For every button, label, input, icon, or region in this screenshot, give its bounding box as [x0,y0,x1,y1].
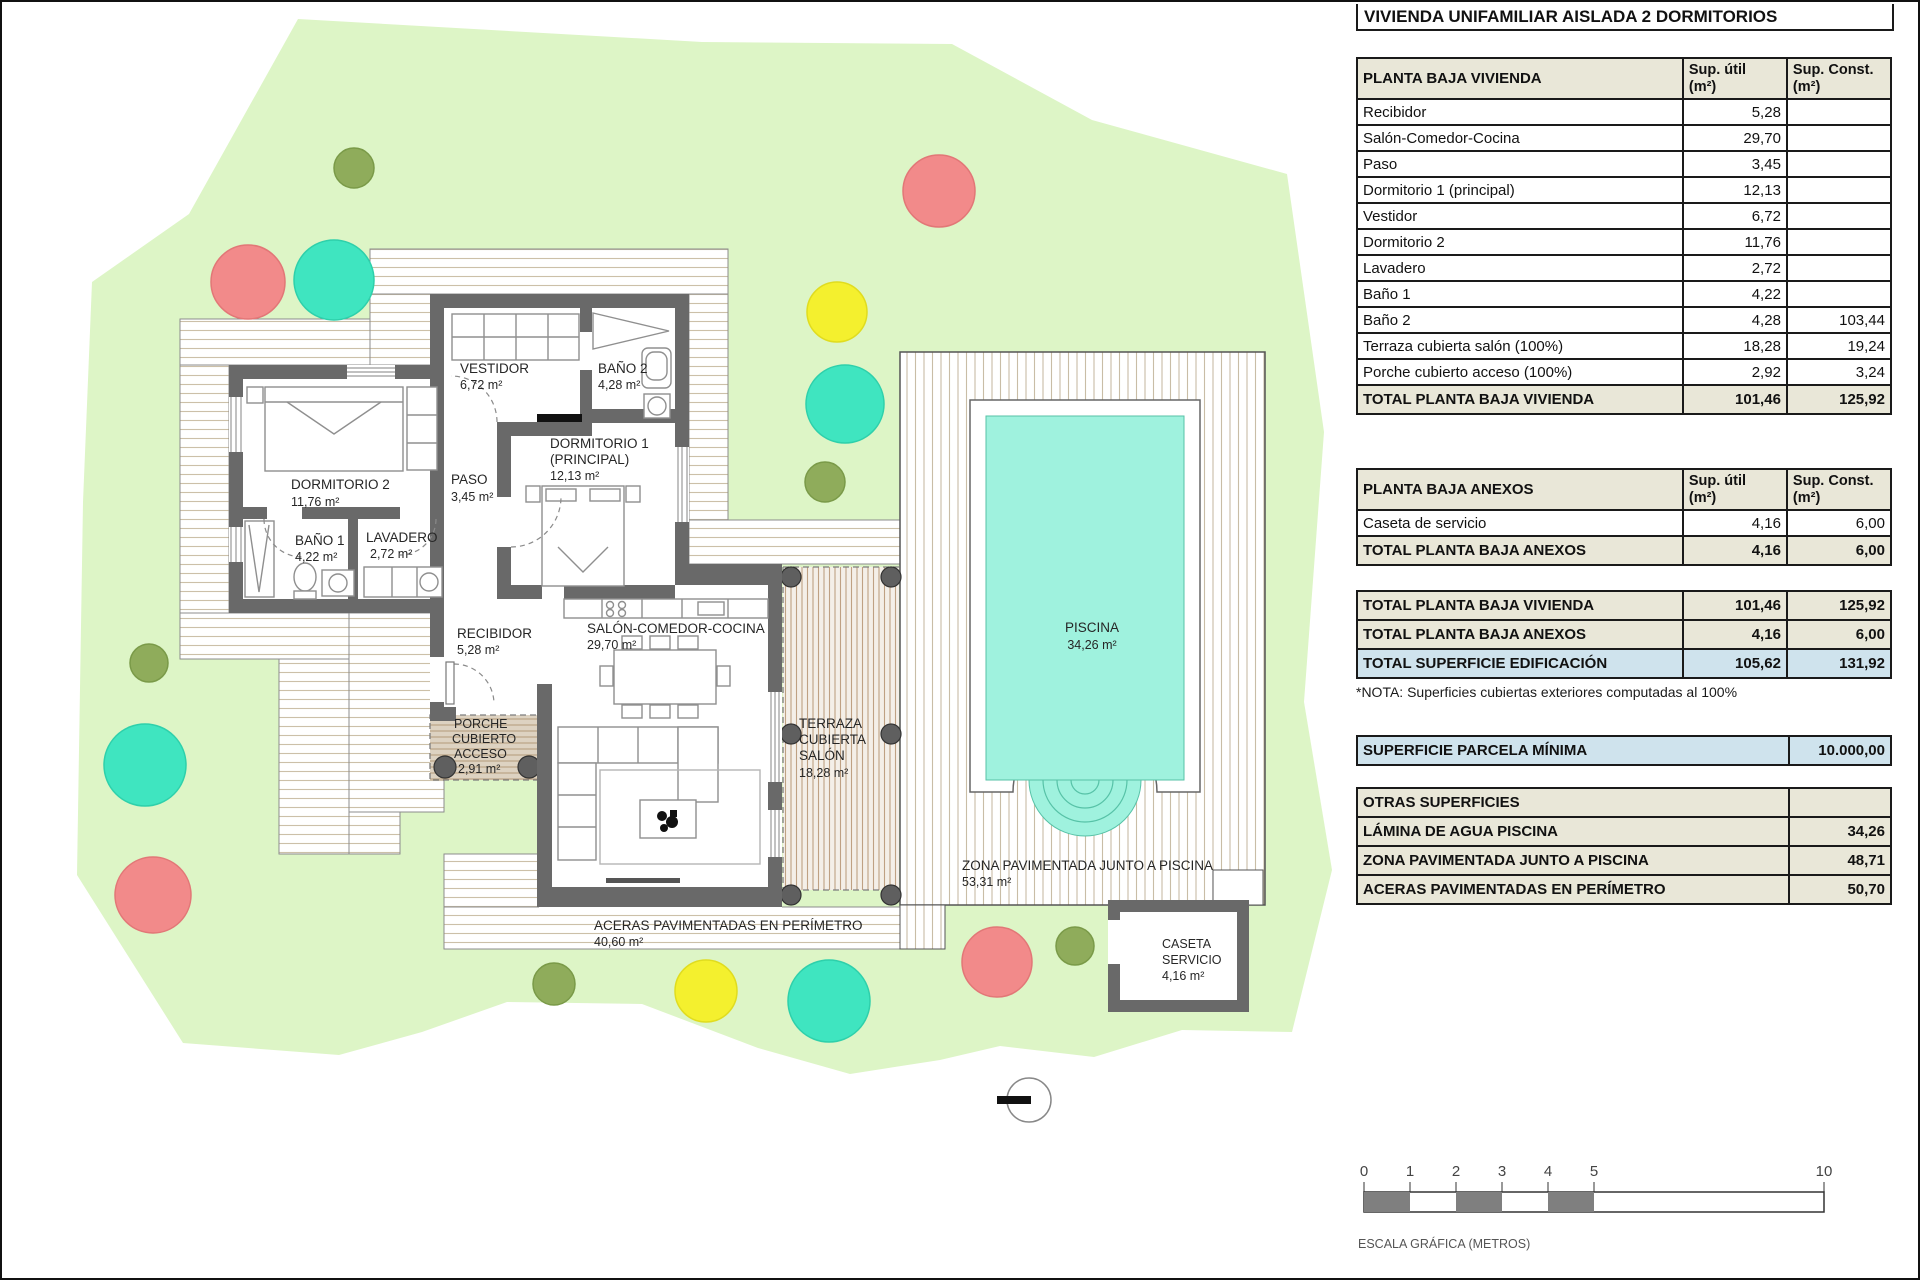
svg-text:1: 1 [1406,1163,1414,1180]
svg-text:2: 2 [1452,1163,1460,1180]
label-paso: PASO [451,472,488,487]
scale-bar: 0 1 2 3 4 5 10 ESCALA GRÁFICA (METROS) [1358,1163,1832,1251]
table-row: Lavadero2,72 [1357,255,1891,281]
svg-text:3,45 m²: 3,45 m² [451,490,493,504]
label-porche: PORCHE [454,717,507,731]
swimming-pool [970,400,1200,836]
table-row: TOTAL PLANTA BAJA VIVIENDA101,46125,92 [1357,591,1891,620]
table-row: Baño 14,22 [1357,281,1891,307]
otras-header-row: OTRAS SUPERFICIES [1357,788,1891,817]
table-row: Salón-Comedor-Cocina29,70 [1357,125,1891,151]
plan-sheet: DORMITORIO 2 11,76 m² BAÑO 1 4,22 m² LAV… [0,0,1920,1280]
sliding-door [537,414,582,422]
benchmark-icon [997,1078,1051,1122]
table-row: Recibidor5,28 [1357,99,1891,125]
label-vestidor: VESTIDOR [460,361,529,376]
label-dormitorio1: DORMITORIO 1 [550,436,649,451]
svg-text:5,28 m²: 5,28 m² [457,643,499,657]
label-piscina: PISCINA [1065,620,1119,635]
svg-text:34,26 m²: 34,26 m² [1067,638,1116,652]
table-otras-superficies: OTRAS SUPERFICIES LÁMINA DE AGUA PISCINA… [1356,787,1892,905]
label-salon: SALÓN-COMEDOR-COCINA [587,621,765,636]
svg-text:SERVICIO: SERVICIO [1162,953,1222,967]
table-row: LÁMINA DE AGUA PISCINA34,26 [1357,817,1891,846]
table2-header: PLANTA BAJA ANEXOS [1357,469,1683,510]
svg-text:5: 5 [1590,1163,1598,1180]
table-row: Baño 24,28103,44 [1357,307,1891,333]
label-dormitorio2: DORMITORIO 2 [291,477,390,492]
table-row: Porche cubierto acceso (100%)2,923,24 [1357,359,1891,385]
svg-text:6,72 m²: 6,72 m² [460,378,502,392]
svg-text:10: 10 [1816,1163,1833,1180]
table-row: Paso3,45 [1357,151,1891,177]
table-row: ACERAS PAVIMENTADAS EN PERÍMETRO50,70 [1357,875,1891,904]
label-aceras: ACERAS PAVIMENTADAS EN PERÍMETRO [594,918,863,933]
svg-text:4,16 m²: 4,16 m² [1162,969,1204,983]
svg-text:29,70 m²: 29,70 m² [587,638,636,652]
table1-total-row: TOTAL PLANTA BAJA VIVIENDA101,46125,92 [1357,385,1891,414]
label-recibidor: RECIBIDOR [457,626,532,641]
entry-door-leaf [446,662,454,704]
svg-text:18,28 m²: 18,28 m² [799,766,848,780]
svg-text:4,22 m²: 4,22 m² [295,550,337,564]
table-parcela-minima: SUPERFICIE PARCELA MÍNIMA10.000,00 [1356,735,1892,766]
svg-text:4,28 m²: 4,28 m² [598,378,640,392]
table-resumen: TOTAL PLANTA BAJA VIVIENDA101,46125,92 T… [1356,590,1892,679]
nota-text: *NOTA: Superficies cubiertas exteriores … [1356,684,1916,700]
scale-caption: ESCALA GRÁFICA (METROS) [1358,1236,1530,1251]
label-bano2: BAÑO 2 [598,361,648,376]
label-zona-pavimentada: ZONA PAVIMENTADA JUNTO A PISCINA [962,858,1213,873]
table-row: Dormitorio 211,76 [1357,229,1891,255]
table-row: TOTAL PLANTA BAJA ANEXOS4,166,00 [1357,620,1891,649]
svg-text:12,13 m²: 12,13 m² [550,469,599,483]
label-bano1: BAÑO 1 [295,533,345,548]
svg-text:2,72 m²: 2,72 m² [370,547,412,561]
svg-text:40,60 m²: 40,60 m² [594,935,643,949]
tv-unit [606,878,680,883]
label-caseta: CASETA [1162,937,1212,951]
label-terraza: TERRAZA [799,716,862,731]
total-superficie-row: TOTAL SUPERFICIE EDIFICACIÓN105,62131,92 [1357,649,1891,678]
svg-text:4: 4 [1544,1163,1552,1180]
table2-total-row: TOTAL PLANTA BAJA ANEXOS4,166,00 [1357,536,1891,565]
label-lavadero: LAVADERO [366,530,438,545]
parcela-row: SUPERFICIE PARCELA MÍNIMA10.000,00 [1357,736,1891,765]
svg-text:3: 3 [1498,1163,1506,1180]
svg-text:0: 0 [1360,1163,1368,1180]
table-row: Vestidor6,72 [1357,203,1891,229]
table-row: ZONA PAVIMENTADA JUNTO A PISCINA48,71 [1357,846,1891,875]
svg-text:CUBIERTA: CUBIERTA [799,732,866,747]
table-planta-baja-vivienda: PLANTA BAJA VIVIENDA Sup. útil(m²) Sup. … [1356,57,1892,415]
table-planta-baja-anexos: PLANTA BAJA ANEXOS Sup. útil(m²) Sup. Co… [1356,468,1892,566]
svg-text:53,31 m²: 53,31 m² [962,875,1011,889]
svg-text:2,91 m²: 2,91 m² [458,762,500,776]
sheet-title: VIVIENDA UNIFAMILIAR AISLADA 2 DORMITORI… [1356,4,1894,31]
table-row: Caseta de servicio4,166,00 [1357,510,1891,536]
svg-text:11,76 m²: 11,76 m² [291,495,339,509]
svg-text:SALÓN: SALÓN [799,748,845,763]
table-row: Dormitorio 1 (principal)12,13 [1357,177,1891,203]
svg-text:CUBIERTO: CUBIERTO [452,732,516,746]
svg-text:ACCESO: ACCESO [454,747,507,761]
svg-text:(PRINCIPAL): (PRINCIPAL) [550,452,629,467]
table1-header: PLANTA BAJA VIVIENDA [1357,58,1683,99]
table-row: Terraza cubierta salón (100%)18,2819,24 [1357,333,1891,359]
